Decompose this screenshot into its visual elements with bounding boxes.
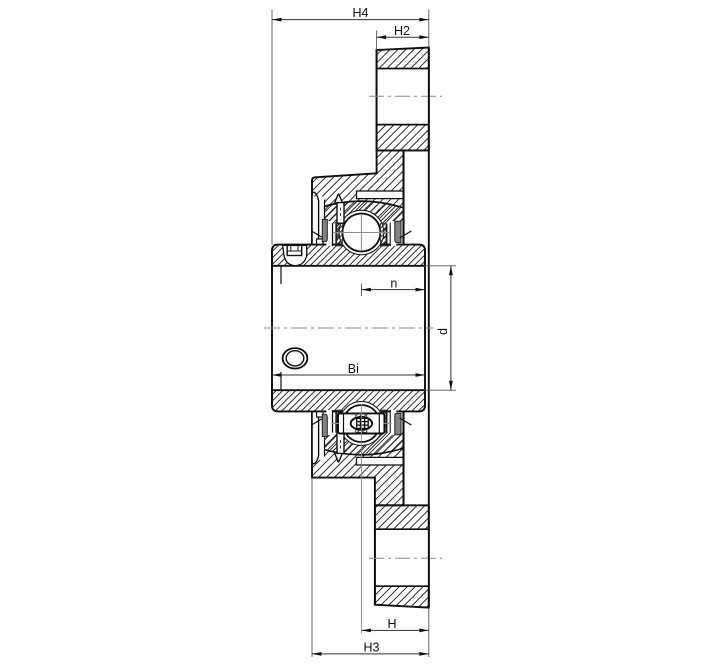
svg-text:Bi: Bi — [348, 362, 359, 376]
svg-text:H3: H3 — [364, 641, 380, 655]
svg-text:H4: H4 — [353, 6, 369, 20]
svg-text:n: n — [390, 276, 397, 290]
svg-text:d: d — [436, 328, 450, 335]
svg-text:H: H — [387, 617, 396, 631]
svg-text:H2: H2 — [394, 24, 410, 38]
